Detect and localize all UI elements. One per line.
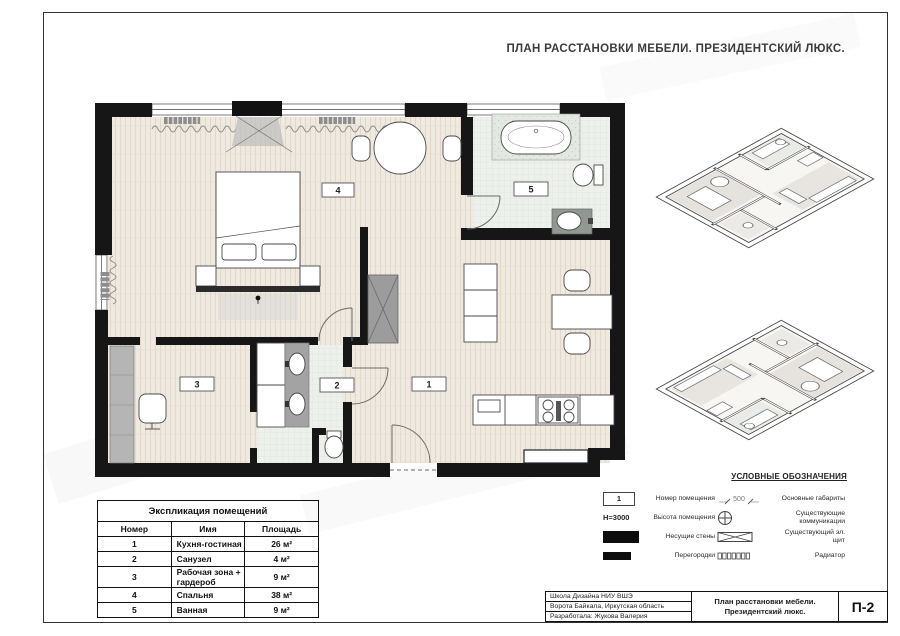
col-header-number: Номер [98, 522, 172, 537]
row-area: 9 м² [245, 603, 319, 618]
shelf-unit [464, 264, 497, 342]
row-name: Кухня-гостиная [171, 537, 245, 552]
radiator-symbol [717, 551, 771, 561]
legend-label-height: Высота помещения [645, 514, 717, 521]
org-line-1: Школа Дизайна НИУ ВШЭ [546, 592, 691, 602]
toilet-wc [325, 431, 343, 458]
bathroom-sink [552, 209, 593, 234]
legend-title: УСЛОВНЫЕ ОБОЗНАЧЕНИЯ [603, 472, 847, 481]
room-1-number: 1 [426, 380, 431, 390]
closet [368, 275, 398, 343]
row-name: Ванная [171, 603, 245, 618]
row-num: 5 [98, 603, 172, 618]
toilet-bathroom [573, 164, 603, 186]
bed [216, 172, 300, 268]
col-header-name: Имя [171, 522, 245, 537]
table-row: 3 Рабочая зона + гардероб 9 м² [98, 567, 319, 588]
row-area: 26 м² [245, 537, 319, 552]
table-row: 1 Кухня-гостиная 26 м² [98, 537, 319, 552]
room-2-number: 2 [334, 381, 339, 391]
legend-label-dimensions: Основные габариты [771, 495, 847, 502]
row-area: 9 м² [245, 567, 319, 588]
wc-cabinets [257, 343, 285, 427]
sheet-code: П-2 [839, 592, 887, 621]
room-3-number: 3 [194, 380, 199, 390]
axonometric-view-1 [652, 96, 878, 278]
svg-text:500: 500 [733, 496, 745, 503]
page-title: ПЛАН РАССТАНОВКИ МЕБЕЛИ. ПРЕЗИДЕНТСКИЙ Л… [506, 43, 845, 55]
wc-sinks [285, 343, 309, 427]
legend-label-room-number: Номер помещения [645, 495, 717, 502]
row-num: 4 [98, 588, 172, 603]
org-line-2: Ворота Байкала, Иркутская область [546, 602, 691, 612]
room-4-number: 4 [335, 186, 340, 196]
table-row: 5 Ванная 9 м² [98, 603, 319, 618]
rooms-table-title: Экспликация помещений [98, 501, 319, 522]
org-line-3: Разработала: Жукова Валерия [546, 612, 691, 621]
row-area: 4 м² [245, 552, 319, 567]
axonometric-view-2 [652, 286, 878, 472]
legend-label-electric-panel: Существующий эл. щит [771, 529, 847, 544]
table-row: 2 Санузел 4 м² [98, 552, 319, 567]
rooms-table: Экспликация помещений Номер Имя Площадь … [97, 500, 319, 618]
row-name: Спальня [171, 588, 245, 603]
bathtub [492, 114, 580, 160]
legend-label-radiator: Радиатор [771, 552, 847, 559]
title-block-org: Школа Дизайна НИУ ВШЭ Ворота Байкала, Ир… [546, 592, 692, 621]
entry-niche [524, 450, 588, 463]
title-block: Школа Дизайна НИУ ВШЭ Ворота Байкала, Ир… [545, 591, 888, 622]
table-row: 4 Спальня 38 м² [98, 588, 319, 603]
floor-plan: 4 5 1 2 3 [85, 88, 640, 500]
headboard-panel [196, 286, 320, 292]
communications-symbol [717, 510, 771, 526]
partition-symbol [603, 552, 631, 560]
legend-label-partitions: Перегородки [645, 552, 717, 559]
bearing-wall-symbol [603, 531, 639, 543]
room-5-number: 5 [528, 185, 533, 195]
doc-title-line-1: План расстановки мебели. [714, 597, 815, 606]
room-number-symbol: 1 [603, 492, 635, 506]
row-num: 1 [98, 537, 172, 552]
row-num: 3 [98, 567, 172, 588]
height-symbol: H=3000 [603, 513, 629, 522]
legend: УСЛОВНЫЕ ОБОЗНАЧЕНИЯ 1 Номер помещения 5… [603, 472, 847, 565]
dimension-symbol: 500 [717, 493, 771, 505]
row-area: 38 м² [245, 588, 319, 603]
col-header-area: Площадь [245, 522, 319, 537]
row-name: Санузел [171, 552, 245, 567]
kitchen-counter [473, 395, 614, 425]
legend-label-communications: Существующие коммуникации [771, 510, 847, 525]
row-name: Рабочая зона + гардероб [171, 567, 245, 588]
row-num: 2 [98, 552, 172, 567]
title-block-doc-title: План расстановки мебели. Президентский л… [692, 592, 839, 621]
legend-label-bearing-walls: Несущие стены [645, 533, 717, 540]
electric-panel-symbol [717, 531, 771, 543]
wardrobe [110, 346, 134, 463]
doc-title-line-2: Президентский люкс. [725, 607, 806, 616]
